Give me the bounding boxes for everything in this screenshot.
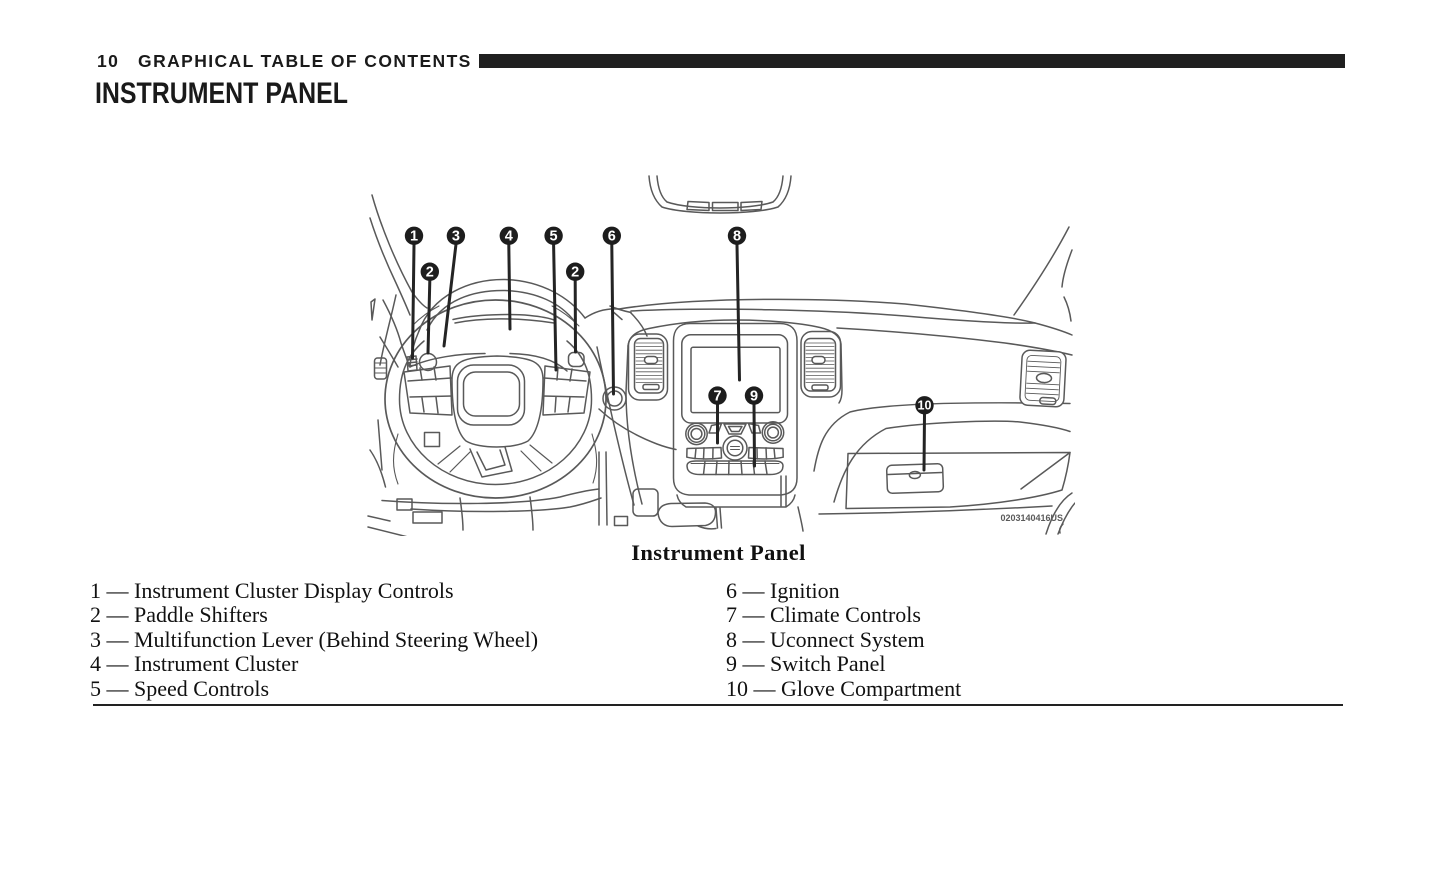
svg-text:8: 8 <box>733 229 741 245</box>
svg-text:3: 3 <box>452 229 460 245</box>
svg-text:9: 9 <box>750 388 758 404</box>
svg-text:6: 6 <box>608 229 616 245</box>
svg-text:2: 2 <box>571 264 579 280</box>
svg-text:0203140416US: 0203140416US <box>1000 513 1063 523</box>
svg-text:4: 4 <box>505 229 513 245</box>
svg-text:1: 1 <box>410 229 418 245</box>
svg-text:10: 10 <box>918 399 932 413</box>
svg-text:5: 5 <box>550 229 558 245</box>
svg-text:2: 2 <box>426 264 434 280</box>
svg-text:7: 7 <box>713 388 721 404</box>
